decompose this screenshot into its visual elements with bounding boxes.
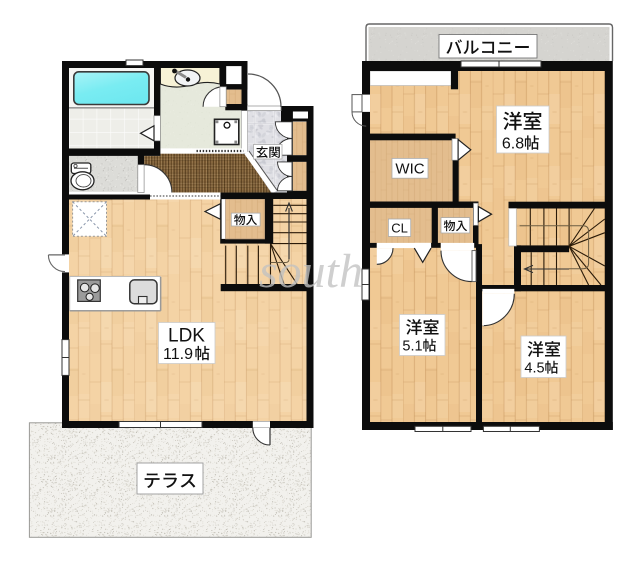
svg-text:11.9: 11.9 — [163, 346, 193, 363]
svg-text:south: south — [259, 245, 363, 298]
svg-text:6.8: 6.8 — [502, 136, 524, 153]
svg-text:5.1: 5.1 — [402, 339, 422, 355]
svg-text:LDK: LDK — [168, 326, 205, 347]
svg-text:CL: CL — [391, 221, 408, 236]
svg-text:WIC: WIC — [395, 161, 424, 178]
svg-text:4.5: 4.5 — [524, 361, 544, 377]
